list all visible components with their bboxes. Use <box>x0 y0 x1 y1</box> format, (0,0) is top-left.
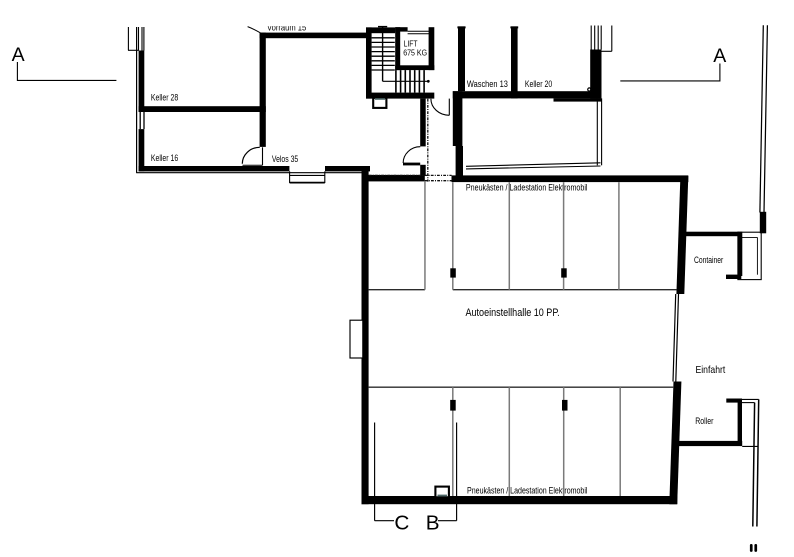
svg-text:Velos 35: Velos 35 <box>272 154 298 164</box>
svg-text:Waschen 13: Waschen 13 <box>467 79 508 89</box>
svg-text:LIFT: LIFT <box>404 39 418 48</box>
svg-text:Keller 20: Keller 20 <box>525 79 552 89</box>
svg-text:Keller 16: Keller 16 <box>151 153 178 163</box>
svg-text:Pneukästen / Ladestation Elekt: Pneukästen / Ladestation Elektromobil <box>467 486 588 496</box>
svg-text:Container: Container <box>694 255 723 265</box>
svg-text:C: C <box>394 512 409 535</box>
svg-text:Roller: Roller <box>695 416 713 426</box>
svg-text:Autoeinstellhalle 10 PP.: Autoeinstellhalle 10 PP. <box>466 307 560 319</box>
svg-text:Einfahrt: Einfahrt <box>696 365 726 376</box>
svg-text:B: B <box>426 512 440 535</box>
svg-text:Pneukästen / Ladestation Elekt: Pneukästen / Ladestation Elektromobil <box>466 182 588 192</box>
svg-text:A: A <box>12 44 25 66</box>
svg-text:675 KG: 675 KG <box>403 48 427 57</box>
svg-text:Keller 28: Keller 28 <box>151 92 178 102</box>
